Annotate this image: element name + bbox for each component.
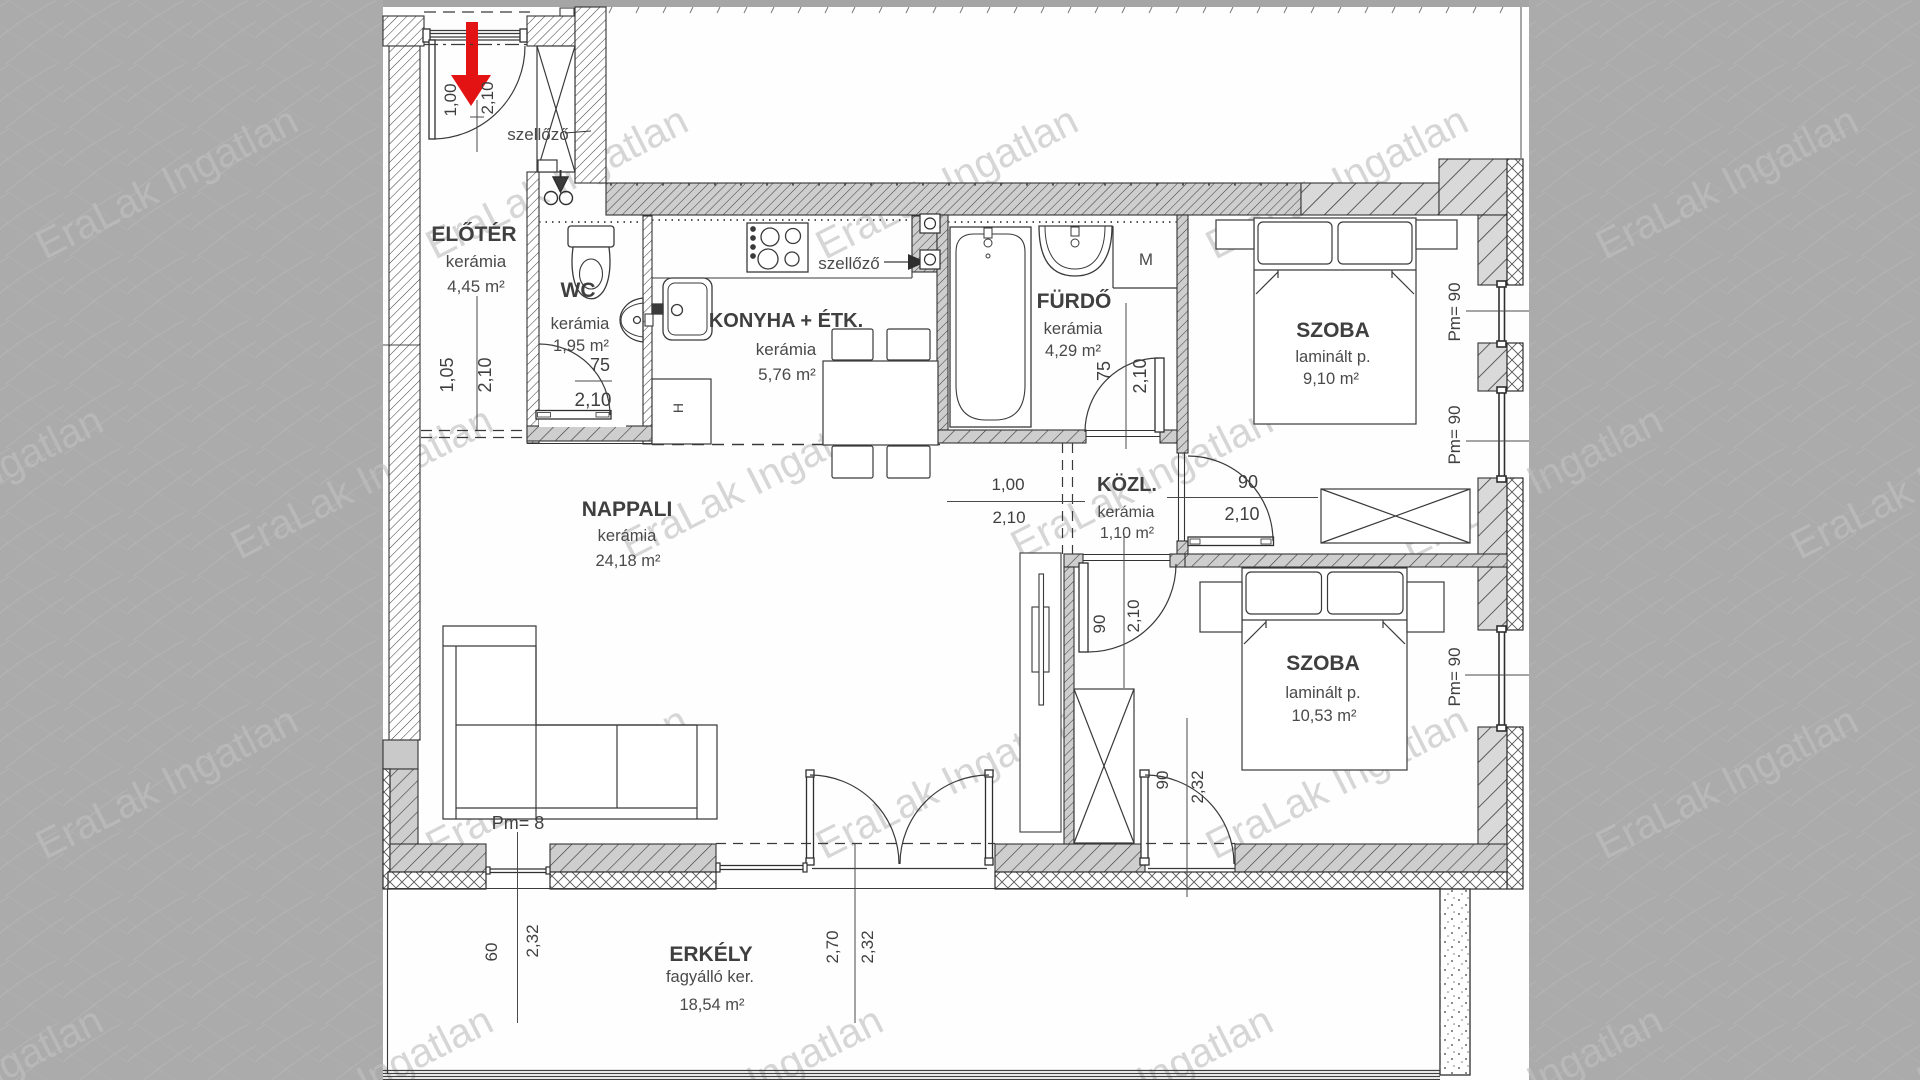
svg-text:KONYHA + ÉTK.: KONYHA + ÉTK. (709, 309, 863, 332)
svg-text:ELŐTÉR: ELŐTÉR (431, 223, 516, 246)
svg-text:Pm= 90: Pm= 90 (1445, 405, 1464, 464)
svg-text:kerámia: kerámia (598, 527, 658, 545)
svg-text:9,10 m²: 9,10 m² (1303, 370, 1359, 388)
svg-text:szellőző: szellőző (818, 254, 879, 273)
svg-text:1,00: 1,00 (991, 475, 1024, 494)
svg-text:2,70: 2,70 (823, 930, 842, 963)
svg-text:1,00: 1,00 (441, 83, 460, 116)
svg-text:1,10 m²: 1,10 m² (1100, 525, 1155, 542)
svg-text:SZOBA: SZOBA (1286, 652, 1360, 675)
svg-text:SZOBA: SZOBA (1296, 319, 1370, 342)
svg-text:2,32: 2,32 (523, 924, 542, 957)
svg-text:75: 75 (590, 355, 610, 375)
svg-text:75: 75 (1094, 361, 1114, 381)
svg-text:szellőző: szellőző (507, 125, 568, 144)
svg-text:Pm= 90: Pm= 90 (1445, 647, 1464, 706)
svg-text:kerámia: kerámia (756, 340, 817, 359)
svg-text:2,10: 2,10 (992, 508, 1025, 527)
svg-text:Pm= 90: Pm= 90 (1445, 282, 1464, 341)
svg-text:FÜRDŐ: FÜRDŐ (1037, 290, 1112, 313)
svg-text:60: 60 (482, 943, 501, 962)
svg-text:KÖZL.: KÖZL. (1097, 473, 1157, 496)
svg-text:Pm= 8: Pm= 8 (492, 813, 545, 833)
svg-text:WC: WC (561, 279, 596, 302)
svg-text:2,10: 2,10 (475, 357, 495, 392)
svg-text:kerámia: kerámia (551, 315, 611, 333)
svg-text:18,54 m²: 18,54 m² (679, 996, 745, 1014)
svg-text:1,95 m²: 1,95 m² (553, 337, 609, 355)
svg-text:4,45 m²: 4,45 m² (447, 277, 505, 296)
svg-text:2,10: 2,10 (1130, 358, 1150, 393)
svg-text:2,32: 2,32 (858, 930, 877, 963)
svg-text:90: 90 (1238, 472, 1258, 492)
svg-text:2,10: 2,10 (1224, 504, 1259, 524)
svg-text:2,10: 2,10 (575, 390, 612, 411)
svg-text:90: 90 (1090, 615, 1109, 634)
svg-text:5,76 m²: 5,76 m² (758, 365, 816, 384)
svg-text:kerámia: kerámia (1044, 320, 1104, 338)
svg-text:2,10: 2,10 (1124, 599, 1143, 632)
svg-text:H: H (670, 403, 686, 413)
svg-text:4,29 m²: 4,29 m² (1045, 342, 1101, 360)
svg-text:fagyálló ker.: fagyálló ker. (666, 968, 754, 986)
svg-text:NAPPALI: NAPPALI (582, 498, 673, 521)
svg-text:M: M (1139, 250, 1153, 269)
svg-text:kerámia: kerámia (446, 252, 507, 271)
svg-text:kerámia: kerámia (1098, 504, 1155, 521)
svg-text:laminált p.: laminált p. (1295, 348, 1370, 366)
svg-text:ERKÉLY: ERKÉLY (669, 943, 752, 966)
svg-text:24,18 m²: 24,18 m² (595, 552, 661, 570)
svg-text:10,53 m²: 10,53 m² (1291, 707, 1357, 725)
svg-text:2,32: 2,32 (1188, 770, 1207, 803)
svg-text:90: 90 (1153, 771, 1172, 790)
svg-text:1,05: 1,05 (437, 357, 457, 392)
svg-text:2,10: 2,10 (478, 81, 497, 114)
svg-text:laminált p.: laminált p. (1285, 684, 1360, 702)
